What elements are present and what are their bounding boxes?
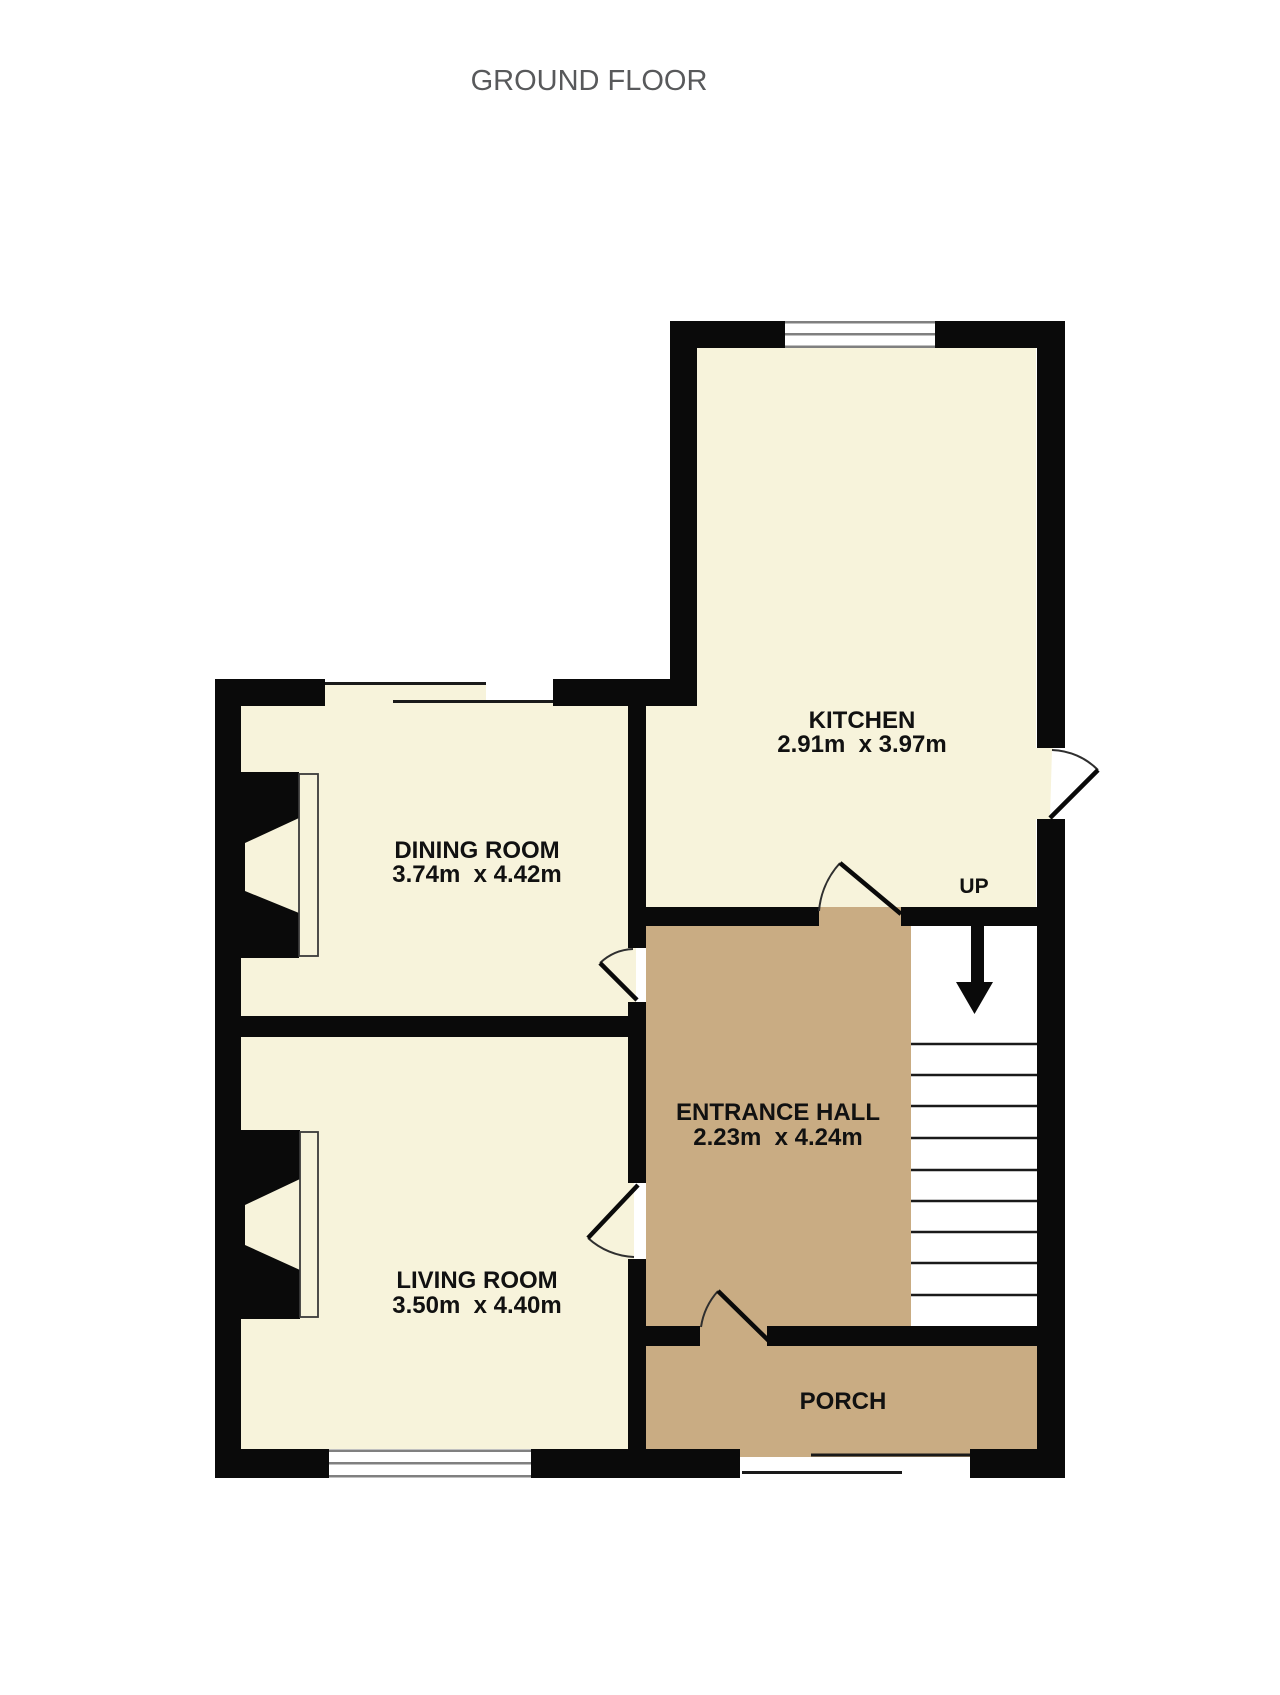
svg-text:PORCH: PORCH <box>800 1388 887 1415</box>
svg-text:KITCHEN: KITCHEN <box>809 707 916 734</box>
svg-text:2.23m x 4.24m: 2.23m x 4.24m <box>693 1124 862 1151</box>
svg-text:2.91m x 3.97m: 2.91m x 3.97m <box>777 731 946 758</box>
svg-text:ENTRANCE HALL: ENTRANCE HALL <box>676 1099 880 1126</box>
svg-text:UP: UP <box>959 875 988 898</box>
svg-text:3.74m x 4.42m: 3.74m x 4.42m <box>392 861 561 888</box>
svg-text:3.50m x 4.40m: 3.50m x 4.40m <box>392 1292 561 1319</box>
svg-text:GROUND FLOOR: GROUND FLOOR <box>471 65 708 97</box>
svg-text:DINING ROOM: DINING ROOM <box>394 837 559 864</box>
svg-text:LIVING ROOM: LIVING ROOM <box>396 1267 557 1294</box>
